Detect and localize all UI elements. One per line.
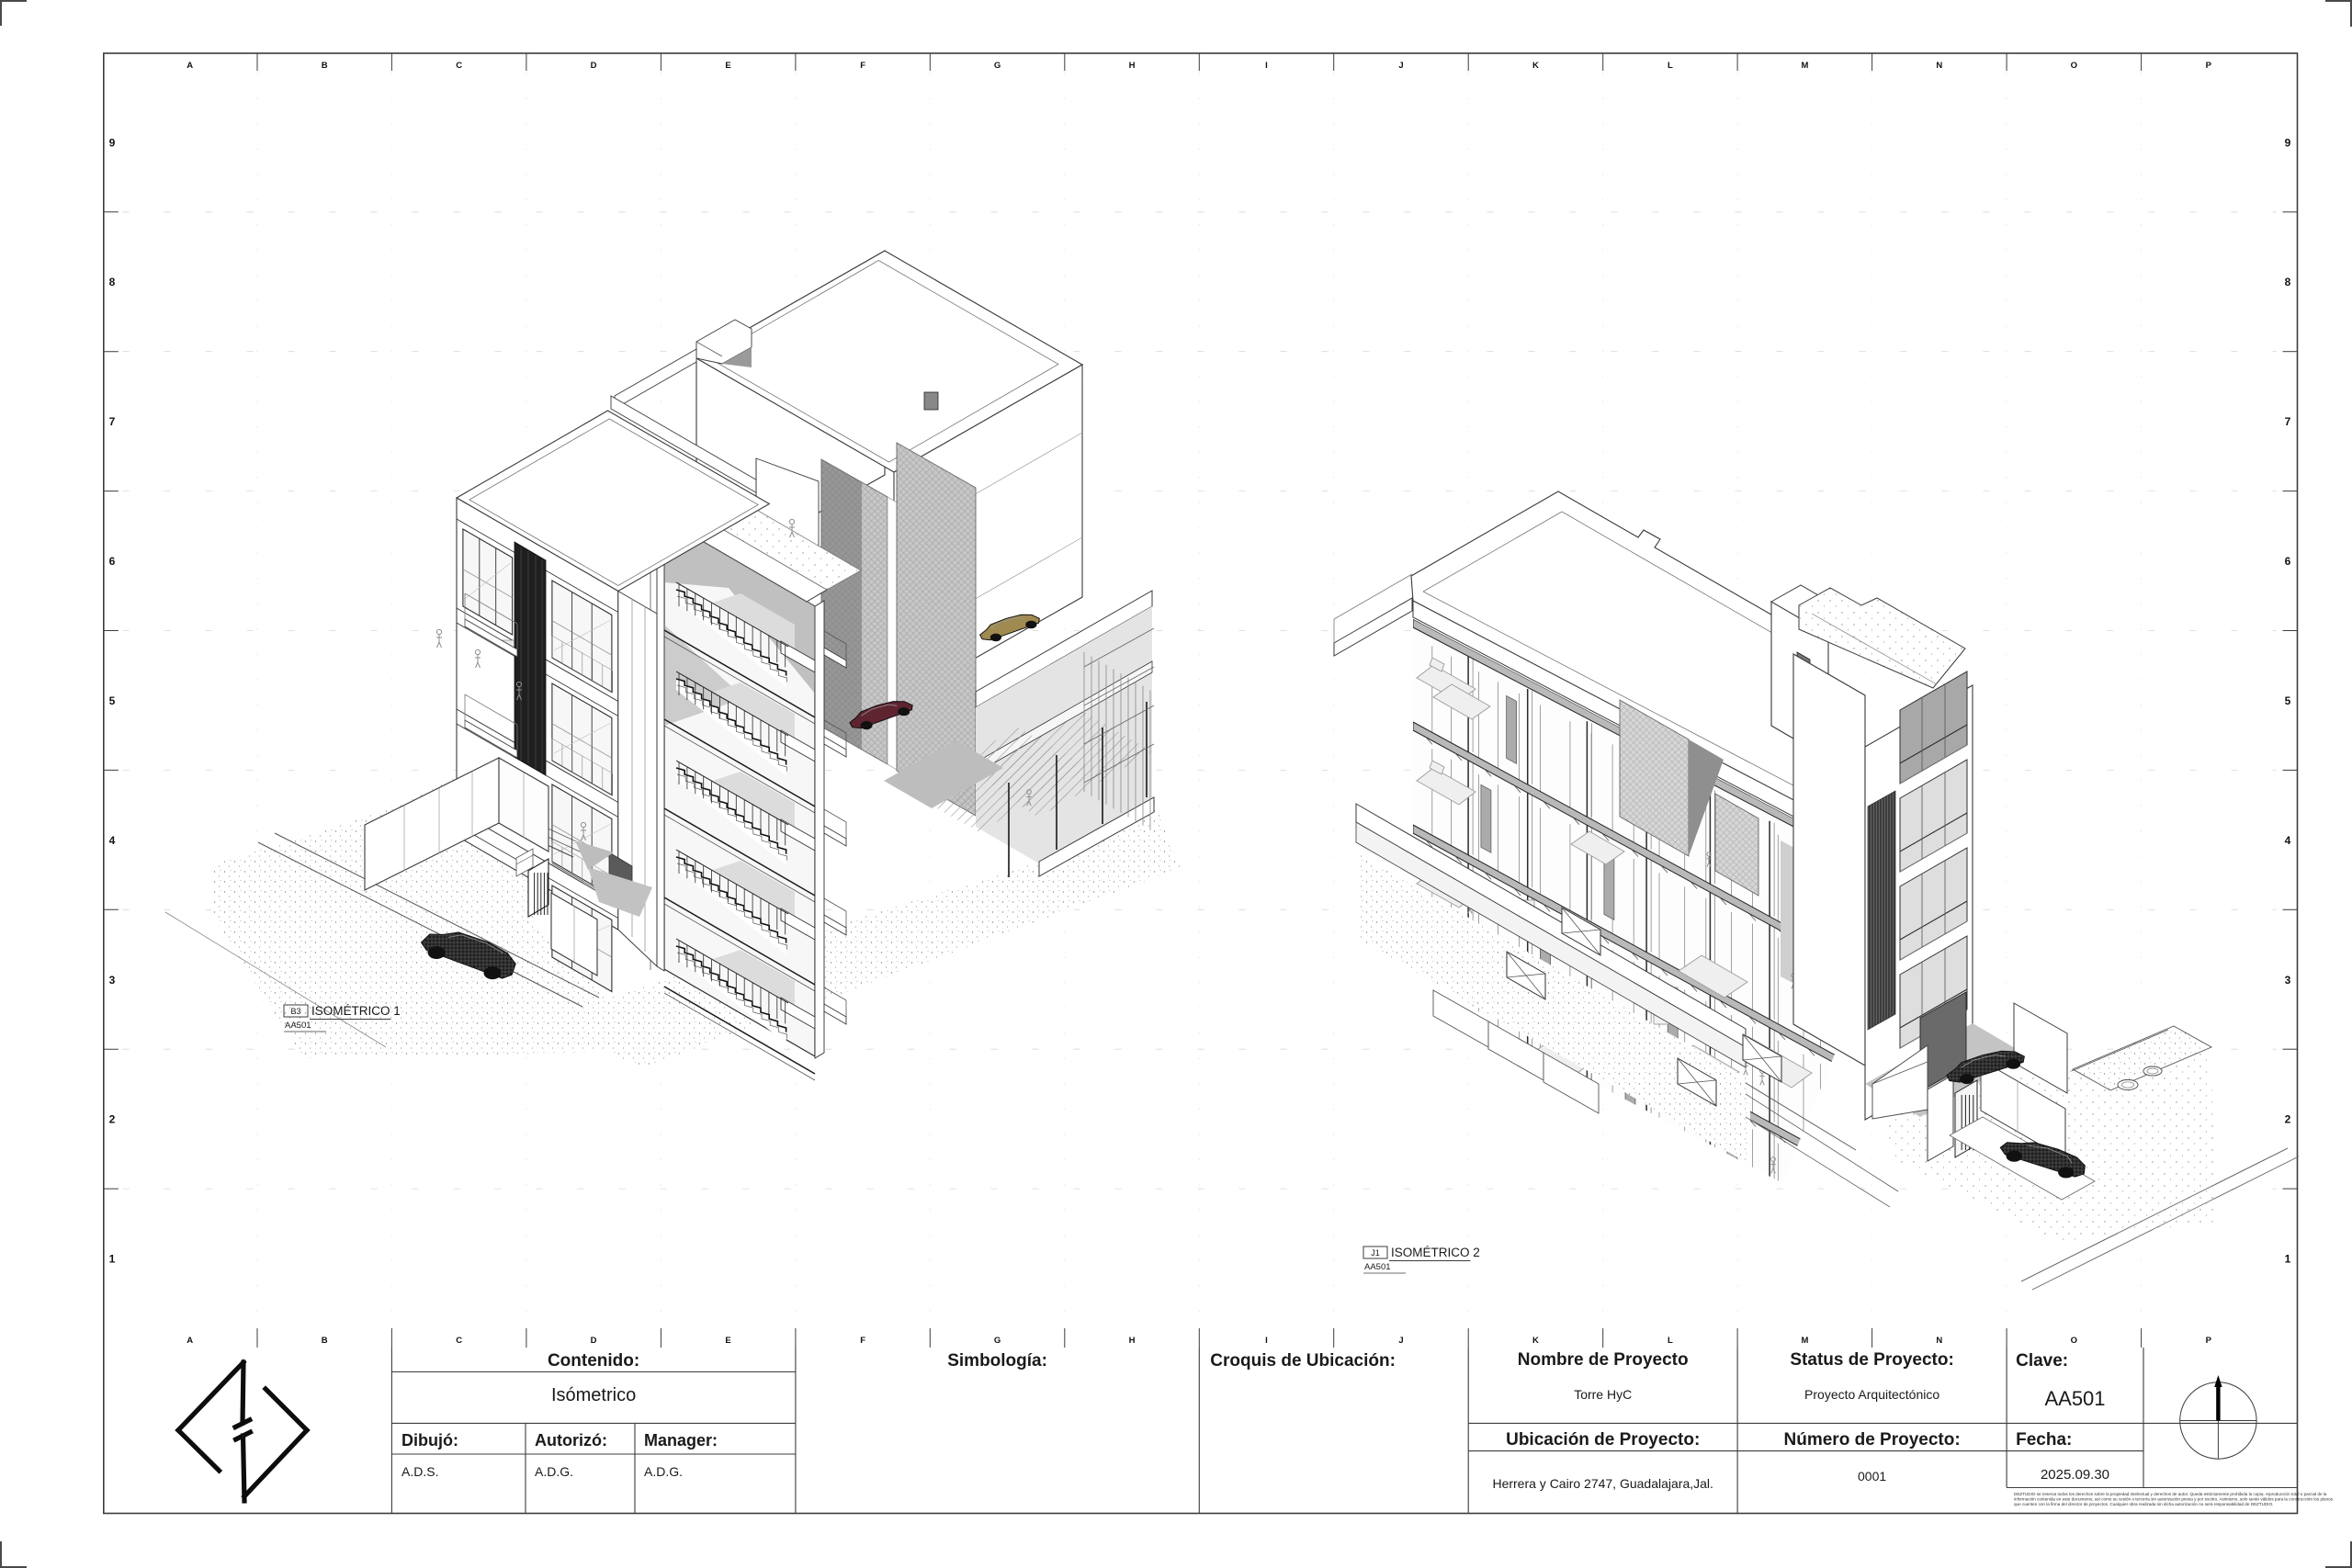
svg-text:L: L: [1668, 61, 1673, 71]
svg-text:1: 1: [2285, 1253, 2291, 1266]
svg-text:B: B: [322, 1336, 328, 1346]
svg-text:A.D.G.: A.D.G.: [644, 1464, 683, 1479]
svg-text:M: M: [1801, 1336, 1808, 1346]
svg-text:F: F: [860, 61, 865, 71]
svg-text:P: P: [2206, 61, 2212, 71]
svg-text:A: A: [187, 1336, 193, 1346]
svg-text:K: K: [1532, 61, 1539, 71]
svg-text:D: D: [591, 1336, 597, 1346]
svg-text:2: 2: [2285, 1113, 2291, 1126]
svg-text:2025.09.30: 2025.09.30: [2041, 1467, 2109, 1483]
svg-text:J: J: [1398, 61, 1403, 71]
svg-text:AA501: AA501: [2044, 1387, 2105, 1410]
svg-text:A: A: [187, 61, 193, 71]
svg-text:F: F: [860, 1336, 865, 1346]
svg-text:A.D.G.: A.D.G.: [535, 1464, 573, 1479]
svg-text:Ubicación de Proyecto:: Ubicación de Proyecto:: [1506, 1430, 1700, 1450]
svg-text:5: 5: [2285, 694, 2291, 707]
svg-text:6: 6: [2285, 555, 2291, 568]
svg-text:G: G: [994, 61, 1001, 71]
svg-text:B3: B3: [290, 1007, 300, 1016]
svg-text:5: 5: [109, 694, 116, 707]
svg-text:4: 4: [109, 834, 116, 847]
svg-text:I: I: [1265, 61, 1268, 71]
svg-text:O: O: [2071, 1336, 2077, 1346]
svg-text:P: P: [2206, 1336, 2212, 1346]
svg-text:N: N: [1936, 1336, 1942, 1346]
svg-text:7: 7: [2285, 415, 2291, 428]
svg-text:Contenido:: Contenido:: [548, 1351, 639, 1371]
svg-text:A.D.S.: A.D.S.: [401, 1464, 438, 1479]
svg-text:Clave:: Clave:: [2016, 1351, 2068, 1371]
svg-text:G: G: [994, 1336, 1001, 1346]
svg-text:AA501: AA501: [285, 1021, 311, 1031]
svg-text:B: B: [322, 61, 328, 71]
svg-text:Dibujó:: Dibujó:: [401, 1431, 458, 1450]
svg-text:3: 3: [109, 974, 116, 987]
svg-text:AA501: AA501: [1364, 1262, 1391, 1272]
svg-text:DEZTUDIO se reserva todos los: DEZTUDIO se reserva todos los derechos s…: [2014, 1492, 2327, 1496]
svg-text:4: 4: [2285, 834, 2291, 847]
svg-text:que cuenten con la firma del d: que cuenten con la firma del director de…: [2014, 1502, 2273, 1506]
svg-text:N: N: [1936, 61, 1942, 71]
svg-text:Autorizó:: Autorizó:: [535, 1431, 607, 1450]
svg-text:E: E: [725, 61, 730, 71]
svg-text:D: D: [591, 61, 597, 71]
svg-text:6: 6: [109, 555, 116, 568]
svg-text:C: C: [456, 61, 462, 71]
svg-text:9: 9: [109, 136, 116, 149]
svg-text:Nombre de Proyecto: Nombre de Proyecto: [1518, 1350, 1689, 1370]
svg-text:C: C: [456, 1336, 462, 1346]
svg-text:ISOMÉTRICO 1: ISOMÉTRICO 1: [311, 1004, 401, 1018]
svg-text:Herrera y Cairo 2747, Guadalaj: Herrera y Cairo 2747, Guadalajara,Jal.: [1492, 1476, 1713, 1491]
svg-text:I: I: [1265, 1336, 1268, 1346]
svg-text:J: J: [1398, 1336, 1403, 1346]
svg-text:9: 9: [2285, 136, 2291, 149]
svg-text:Número de Proyecto:: Número de Proyecto:: [1784, 1430, 1961, 1450]
svg-text:0001: 0001: [1858, 1469, 1886, 1483]
svg-text:J1: J1: [1371, 1248, 1380, 1258]
svg-text:2: 2: [109, 1113, 116, 1126]
svg-text:3: 3: [2285, 974, 2291, 987]
svg-text:L: L: [1668, 1336, 1673, 1346]
svg-text:ISOMÉTRICO 2: ISOMÉTRICO 2: [1391, 1246, 1480, 1259]
svg-text:Manager:: Manager:: [644, 1431, 718, 1450]
svg-text:Fecha:: Fecha:: [2016, 1430, 2072, 1450]
svg-text:1: 1: [109, 1253, 116, 1266]
svg-text:Croquis de Ubicación:: Croquis de Ubicación:: [1210, 1351, 1396, 1371]
svg-text:K: K: [1532, 1336, 1539, 1346]
svg-text:O: O: [2071, 61, 2077, 71]
svg-text:Isómetrico: Isómetrico: [551, 1385, 636, 1405]
svg-text:Status de Proyecto:: Status de Proyecto:: [1790, 1350, 1953, 1370]
svg-text:Torre HyC: Torre HyC: [1574, 1387, 1632, 1402]
svg-text:7: 7: [109, 415, 116, 428]
svg-text:E: E: [725, 1336, 730, 1346]
svg-text:H: H: [1129, 61, 1136, 71]
svg-text:información contenida en este: información contenida en este documento,…: [2014, 1497, 2334, 1502]
svg-text:M: M: [1801, 61, 1808, 71]
svg-text:Simbología:: Simbología:: [947, 1351, 1047, 1371]
svg-text:Proyecto Arquitectónico: Proyecto Arquitectónico: [1804, 1387, 1939, 1402]
svg-text:8: 8: [109, 276, 116, 288]
svg-text:H: H: [1129, 1336, 1136, 1346]
svg-text:8: 8: [2285, 276, 2291, 288]
